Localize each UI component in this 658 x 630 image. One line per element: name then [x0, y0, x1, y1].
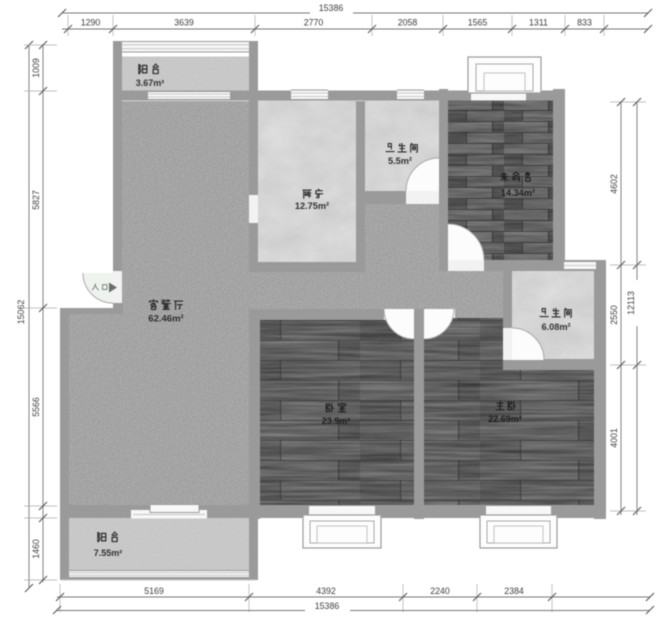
svg-text:12113: 12113 [626, 291, 636, 315]
svg-text:1290: 1290 [81, 18, 101, 28]
svg-text:2384: 2384 [504, 586, 524, 596]
svg-text:1009: 1009 [31, 58, 41, 78]
svg-text:15386: 15386 [319, 3, 344, 13]
svg-text:2770: 2770 [304, 18, 324, 28]
svg-text:5566: 5566 [31, 397, 41, 417]
svg-text:5169: 5169 [144, 586, 164, 596]
svg-text:5827: 5827 [31, 190, 41, 210]
svg-text:2058: 2058 [398, 18, 418, 28]
svg-text:23.9m²: 23.9m² [322, 416, 351, 426]
svg-text:14.34m²: 14.34m² [501, 188, 535, 198]
svg-text:2550: 2550 [609, 305, 619, 325]
svg-text:15062: 15062 [16, 300, 26, 325]
svg-text:4602: 4602 [609, 174, 619, 194]
svg-text:12.75m²: 12.75m² [295, 201, 329, 211]
svg-text:1460: 1460 [31, 539, 41, 559]
svg-text:3.67m²: 3.67m² [136, 78, 165, 88]
svg-text:1565: 1565 [468, 18, 488, 28]
svg-text:6.08m²: 6.08m² [541, 322, 570, 332]
svg-text:1311: 1311 [529, 18, 548, 28]
svg-text:2240: 2240 [430, 586, 450, 596]
svg-text:5.5m²: 5.5m² [388, 156, 412, 166]
svg-text:4392: 4392 [316, 586, 336, 596]
svg-text:7.55m²: 7.55m² [94, 548, 123, 558]
svg-text:4001: 4001 [609, 428, 619, 448]
svg-text:62.46m²: 62.46m² [148, 314, 183, 325]
svg-text:22.69m²: 22.69m² [488, 414, 522, 424]
svg-text:15386: 15386 [315, 601, 340, 611]
svg-text:3639: 3639 [174, 18, 194, 28]
svg-text:833: 833 [577, 18, 592, 28]
